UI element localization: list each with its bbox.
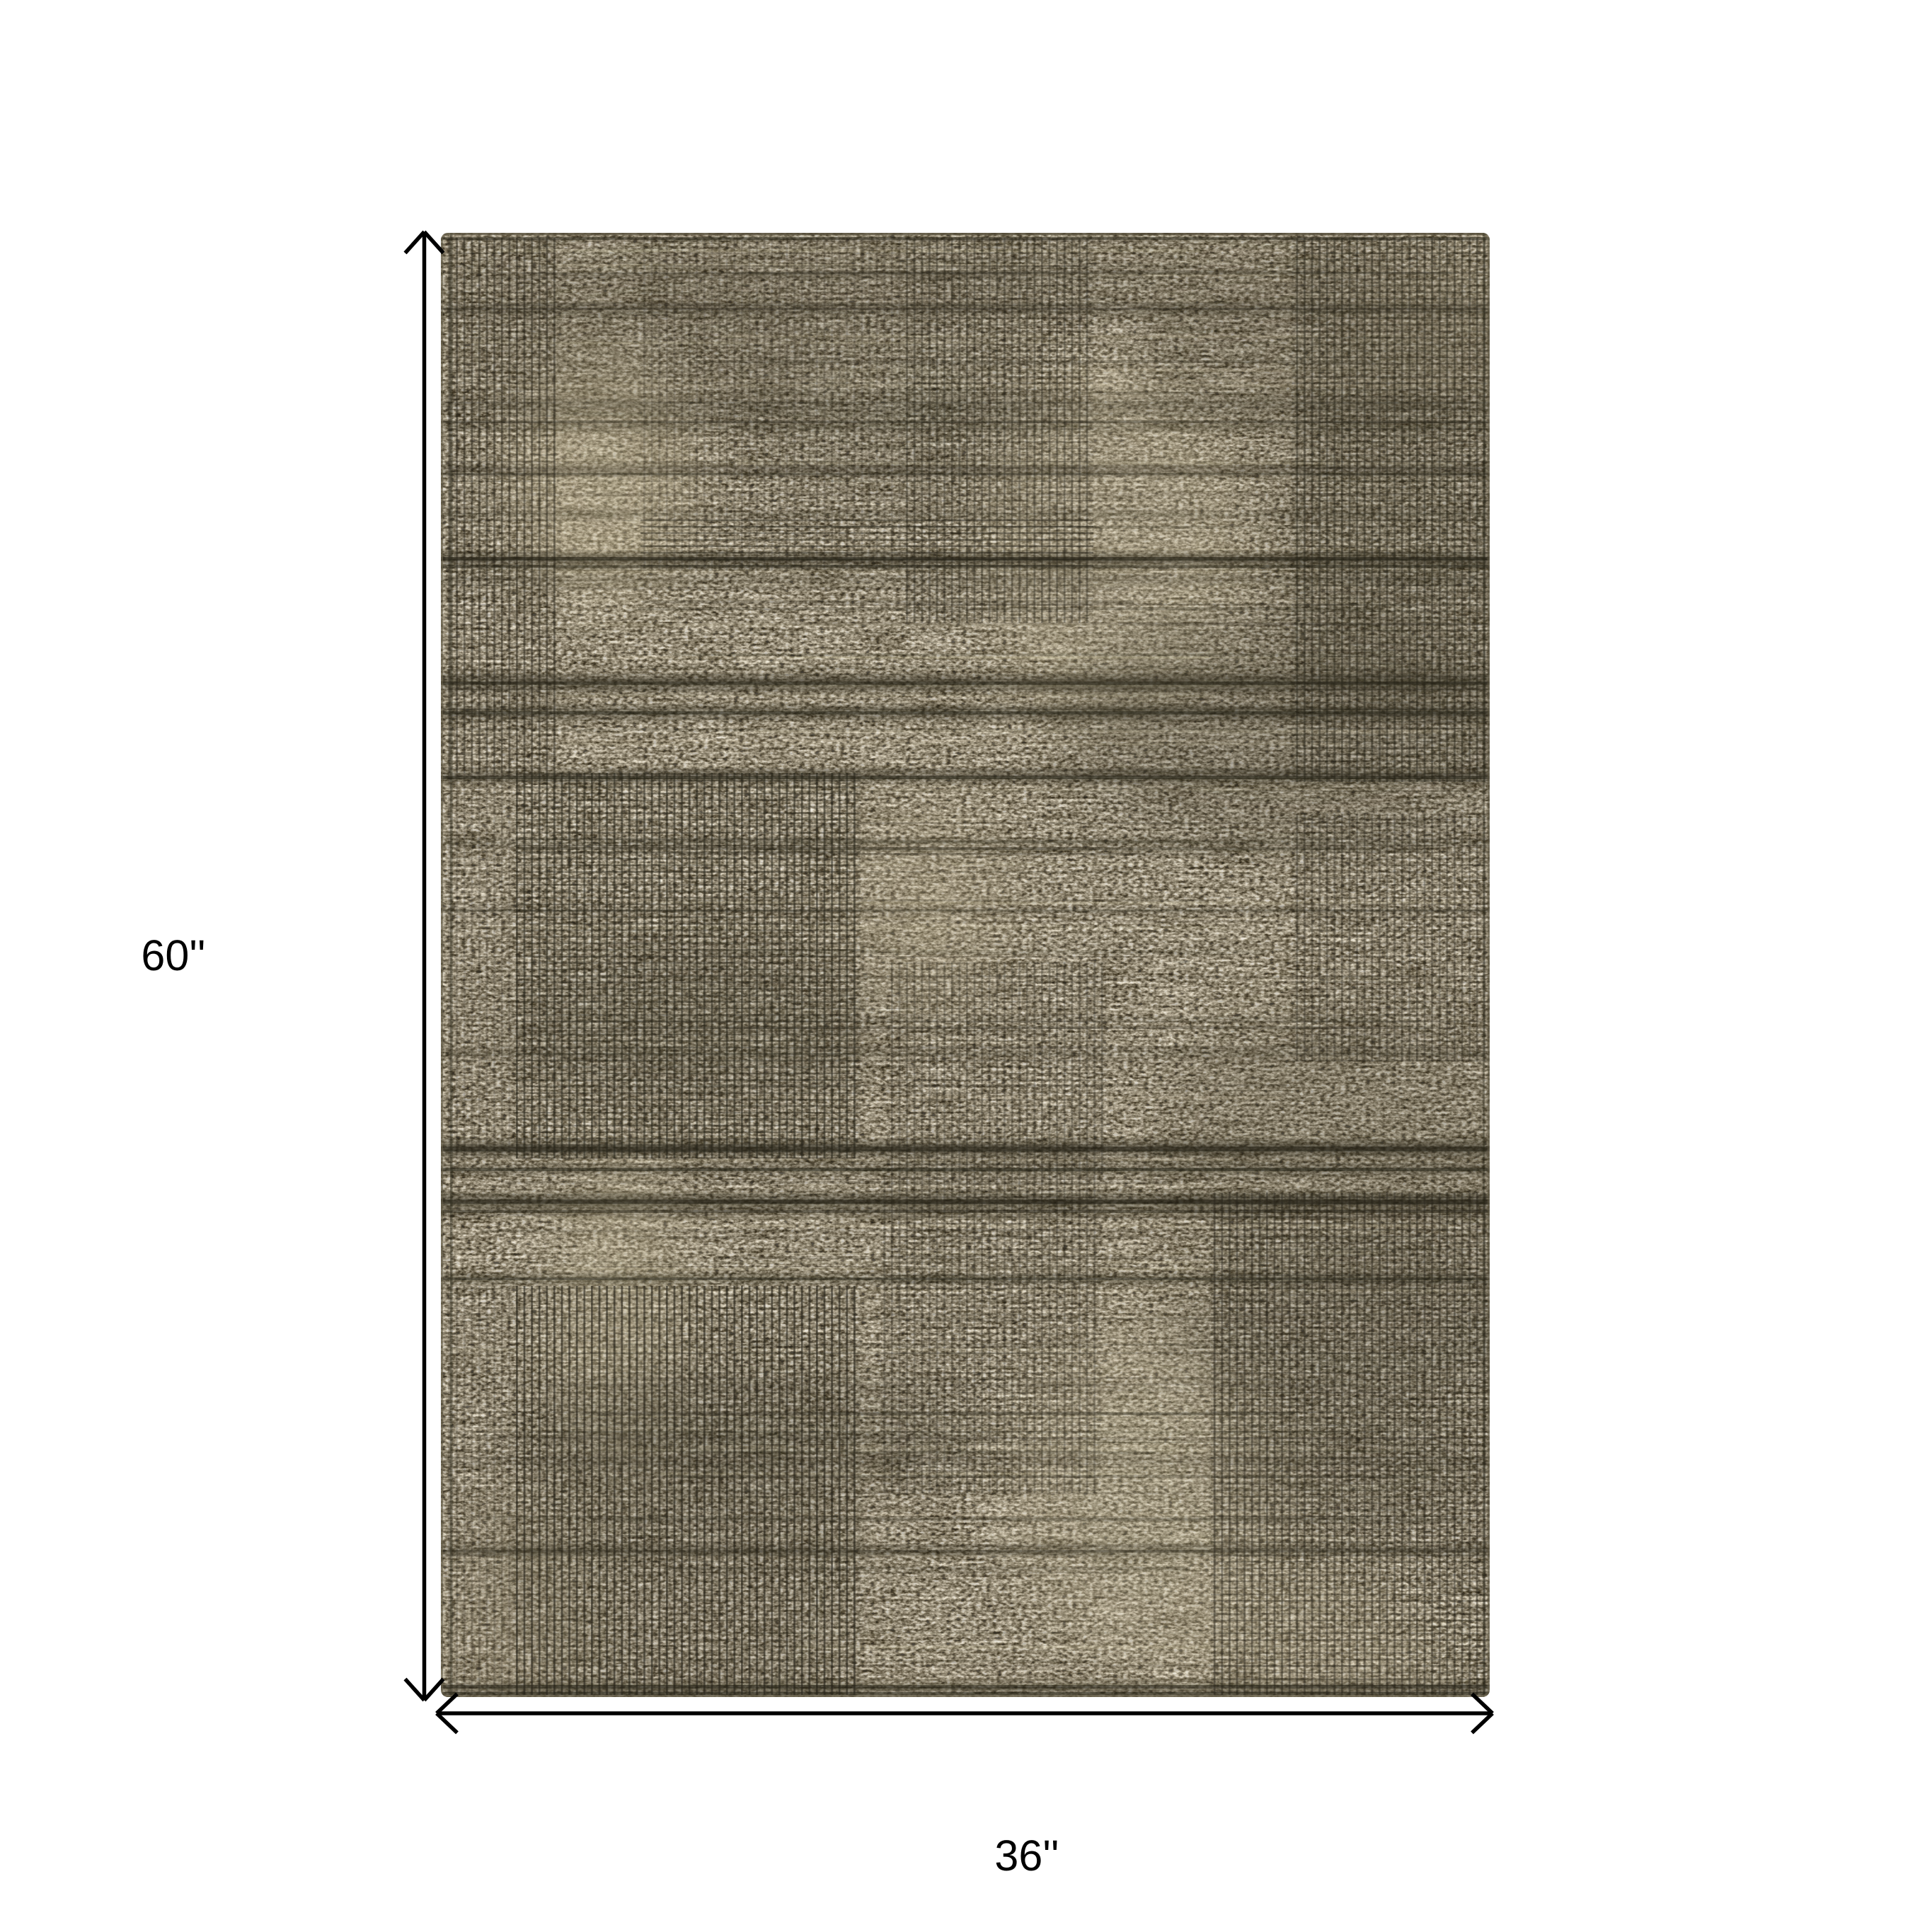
svg-text:36'': 36''	[994, 1832, 1059, 1880]
svg-text:60'': 60''	[141, 931, 205, 979]
